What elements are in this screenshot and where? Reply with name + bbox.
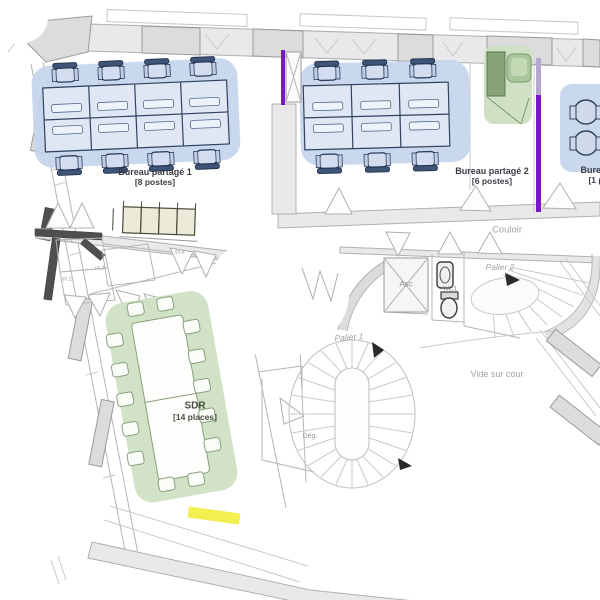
label-couloir: Couloir (492, 226, 522, 237)
lockers (112, 200, 198, 241)
label-sdr: SDR (184, 400, 205, 412)
round-table-icon (574, 100, 598, 124)
desk-icon (313, 124, 343, 133)
label-sdr-capacity: [14 places] (173, 413, 217, 423)
kitchenette (484, 46, 532, 124)
room-bureau-partage-1 (31, 56, 242, 177)
label-placard-3: Pl.3 (95, 265, 105, 273)
chair-icon (317, 66, 337, 81)
chair-icon (183, 319, 201, 335)
label-bureau-3-capacity: [1 p (588, 176, 600, 186)
chair-icon (188, 348, 206, 364)
chair-icon (203, 437, 221, 453)
door-swing-icon (280, 398, 304, 424)
desk-icon (51, 103, 81, 112)
degagement-walls (258, 366, 314, 472)
chair-icon (367, 153, 387, 168)
round-table-icon (574, 131, 598, 155)
label-placard-1: Pl.1 (63, 238, 73, 245)
chair-icon (116, 391, 134, 407)
desk-icon (143, 99, 173, 108)
label-wc1: WC1 (443, 285, 457, 292)
chair-icon (319, 154, 339, 169)
label-ascenseur: Asc (399, 279, 412, 288)
floor-plan: Bureau partagé 1 [8 postes] Bureau parta… (0, 0, 600, 600)
chair-icon (55, 68, 76, 83)
chair-icon (158, 477, 176, 493)
label-palier-2: Palier 2 (486, 263, 515, 273)
sink-icon (437, 262, 453, 288)
label-placard-4: Pl.4 (175, 250, 185, 257)
desk-icon (361, 101, 391, 110)
counter-icon (487, 52, 505, 96)
purple-partition-line (281, 50, 285, 105)
desk-icon (190, 119, 220, 128)
chair-icon (127, 451, 145, 467)
label-placard-2: Pl.2 (62, 277, 72, 284)
purple-partition-line-light (536, 58, 541, 96)
label-bureau-partage-1: Bureau partagé 1 (118, 167, 192, 177)
desk-icon (409, 121, 439, 130)
technical-shaft (286, 52, 301, 102)
label-vide-sur-cour: Vide sur cour (471, 369, 524, 379)
purple-partition-line (536, 95, 541, 212)
label-bureau-partage-2-capacity: [6 postes] (472, 177, 512, 187)
chair-icon (415, 151, 435, 166)
room-bureau-3 (560, 84, 600, 172)
desk-icon (98, 123, 128, 132)
desk-icon (313, 102, 343, 111)
room-bureau-partage-2 (299, 58, 472, 174)
chair-icon (121, 421, 139, 437)
chair-icon (127, 301, 145, 317)
chair-icon (106, 332, 124, 348)
label-degagement: Dég. (303, 433, 318, 441)
desk-icon (144, 121, 174, 130)
chair-icon (413, 63, 433, 78)
desk-icon (361, 123, 391, 132)
direction-arrow-icon (398, 458, 412, 470)
toilet-icon (441, 298, 457, 318)
highlight-mark (187, 506, 240, 524)
chair-icon (193, 378, 211, 394)
room-sdr (101, 288, 240, 505)
label-bureau-3: Bureau (580, 165, 600, 175)
label-bureau-partage-2: Bureau partagé 2 (455, 166, 529, 176)
desk-icon (97, 101, 127, 110)
chair-icon (151, 151, 172, 166)
floor-plan-drawing (0, 0, 600, 600)
chair-icon (365, 65, 385, 80)
chair-icon (193, 62, 214, 77)
exterior-bottom-wall (88, 506, 462, 600)
chair-icon (111, 362, 129, 378)
chair-icon (101, 66, 122, 81)
chair-icon (197, 149, 218, 164)
chair-icon (156, 296, 174, 312)
chair-icon (59, 155, 80, 170)
desk-icon (189, 97, 219, 106)
chair-icon (187, 471, 205, 487)
desk-icon (52, 125, 82, 134)
label-palier-1: Palier 1 (334, 332, 363, 344)
desk-icon (409, 99, 439, 108)
chair-icon (147, 64, 168, 79)
label-bureau-partage-1-capacity: [8 postes] (135, 178, 175, 188)
